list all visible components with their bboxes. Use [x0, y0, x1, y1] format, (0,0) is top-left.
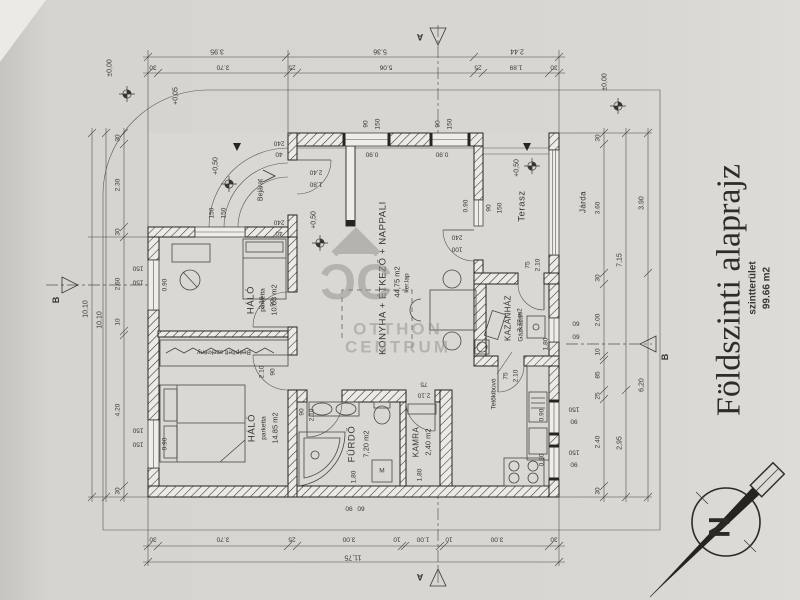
- wardrobe-name: Beépített szekrény: [196, 349, 251, 356]
- bedroom1-name: HÁLÓ: [246, 286, 257, 314]
- bedroom2-floor: parketta: [261, 416, 268, 440]
- bathroom-name: FÜRDŐ: [347, 426, 358, 463]
- dim-right-a-7: 2.40: [595, 435, 602, 448]
- dim-right-a-8: 30: [595, 487, 602, 495]
- living-floor: ker.lap: [404, 273, 411, 293]
- living-area: 44,75 m2: [393, 266, 402, 297]
- section-label-b-left: B: [51, 296, 61, 303]
- bath-door-height: 2.10: [309, 408, 316, 421]
- win-k2-width: 90: [570, 461, 578, 468]
- dim-right-a-0: 30: [595, 134, 602, 142]
- section-label-a-top: A: [416, 32, 423, 42]
- boilerN-door-height: 2.10: [535, 258, 542, 271]
- washer-label: M: [379, 468, 384, 475]
- bath-dim: 1,80: [351, 470, 358, 483]
- window-boiler-vent: [549, 318, 559, 342]
- entry-jamb-b1: 240: [273, 219, 284, 226]
- dim-bottom-3: 3.00: [342, 536, 355, 543]
- win-n1-height: 150: [375, 118, 382, 129]
- level-terrace-50: +0,50: [514, 159, 521, 177]
- section-label-a-bottom: A: [416, 572, 423, 582]
- dim-right-b-1: 2,95: [617, 436, 624, 450]
- dim-bottom-6: 10: [445, 536, 453, 543]
- boilerS-door-width: 75: [503, 372, 510, 380]
- win-e-living-sill: 0.90: [463, 199, 470, 212]
- dim-top-outer-0: 3.95: [210, 48, 224, 55]
- floorplan-canvas: A A B B: [0, 0, 800, 600]
- pantry-dim: 1,80: [417, 468, 424, 481]
- bed2-door-height: 2.10: [259, 365, 266, 378]
- boilerS-door-height: 2.10: [513, 369, 520, 382]
- compass-north-letter: N: [704, 516, 737, 538]
- dim-top-inner-0: 30: [149, 64, 157, 71]
- boiler-name: KAZÁNHÁZ: [504, 295, 513, 341]
- win-n2-height: 150: [447, 118, 454, 129]
- window-west-bedroom1: [148, 260, 159, 310]
- dim-right-c-1: 6,20: [639, 378, 646, 392]
- win-porch-height: 150: [221, 207, 228, 218]
- dim-bottom-2: 25: [288, 536, 296, 543]
- window-porch: [195, 227, 245, 237]
- dim-left-4: 10: [115, 318, 122, 326]
- watermark-line1: OTTHON: [353, 320, 443, 339]
- bedroom1-floor: parketta: [260, 288, 267, 312]
- window-east-living: [474, 200, 483, 226]
- dim-bottom-7: 3.00: [490, 536, 503, 543]
- title-area: 99.66 m2: [762, 266, 773, 309]
- win-n2-width: 90: [435, 120, 442, 128]
- hall-partition-wall: [346, 146, 355, 226]
- dim-left-1: 2.30: [115, 178, 122, 191]
- dim-left-0: 30: [115, 134, 122, 142]
- pantry-door-height: 2.10: [417, 392, 430, 399]
- dim-right-a-6: 25: [595, 392, 602, 400]
- dim-right-a-2: 30: [595, 274, 602, 282]
- dim-left-2: 30: [115, 228, 122, 236]
- level-plus5: +0,05: [173, 87, 180, 105]
- window-east-kitchen-2: [549, 445, 559, 480]
- dim-top-outer-2: 2.44: [510, 48, 524, 55]
- vent-height: 60: [572, 333, 580, 340]
- bedroom2-area: 14.85 m2: [271, 412, 280, 443]
- dim-top-inner-6: 30: [550, 64, 558, 71]
- win-w1-sill: 0.90: [162, 278, 169, 291]
- win-e-living-width: 90: [486, 204, 493, 212]
- watermark-logo: ƆC: [320, 254, 392, 310]
- dim-top-inner-4: 25: [474, 64, 482, 71]
- boilerN-door-width: 75: [525, 261, 532, 269]
- bed2-door-width: 90: [270, 368, 277, 376]
- dim-right-a-5: 85: [595, 371, 602, 379]
- entry-door-width: 1,80: [309, 181, 322, 188]
- dim-right-c-0: 3.90: [639, 196, 646, 210]
- dim-bottom-0: 30: [149, 536, 157, 543]
- win-porch-width: 150: [209, 207, 216, 218]
- win-w1-width: 150: [132, 265, 143, 272]
- bedroom1-area: 10.03 m2: [270, 284, 279, 315]
- pantry-area: 2,40 m2: [424, 428, 433, 455]
- win-w2-width: 150: [132, 427, 143, 434]
- terrace-railing: [549, 150, 559, 255]
- win-k1-sill: 0.90: [539, 408, 546, 421]
- entry-jamb-b2: 40: [275, 230, 283, 237]
- dim-left-total-a: 10,10: [83, 300, 90, 318]
- dim-top-inner-5: 1.89: [509, 64, 522, 71]
- south-opening-a: 90: [345, 505, 353, 512]
- pantry-name: KAMRA: [412, 427, 421, 458]
- level-zero-right: ±0,00: [602, 73, 609, 91]
- bathroom-area: 7,20 m2: [362, 430, 371, 457]
- win-k1-width: 90: [570, 418, 578, 425]
- window-east-kitchen-1: [549, 400, 559, 435]
- win-w1-height: 150: [132, 279, 143, 286]
- window-north-1: [343, 133, 390, 146]
- level-hall-50: +0,50: [311, 211, 318, 229]
- pantry-door-width: 75: [420, 381, 428, 388]
- win-w2-height: 150: [132, 441, 143, 448]
- dim-right-b-0: 7,15: [617, 253, 624, 267]
- dim-top-inner-3: 5.06: [379, 64, 392, 71]
- dim-top-inner-1: 3.70: [216, 64, 229, 71]
- win-k2-sill: 0.90: [539, 453, 546, 466]
- title-subtitle: szintterület: [748, 261, 759, 315]
- dim-bottom-1: 3.70: [216, 536, 229, 543]
- bedroom2-name: HÁLÓ: [247, 414, 258, 442]
- dim-right-a-1: 3.60: [595, 201, 602, 214]
- terrace-name: Terasz: [517, 190, 528, 222]
- page-title: Földszinti alaprajz: [711, 164, 748, 416]
- dim-left-6: 30: [115, 487, 122, 495]
- entry-jamb-a1: 240: [273, 140, 284, 147]
- bath-door-width: 90: [299, 408, 306, 416]
- dim-left-total-b: 10.10: [97, 311, 104, 329]
- dim-right-a-3: 2.00: [595, 313, 602, 326]
- dim-bottom-8: 30: [550, 536, 558, 543]
- entry-jamb-a2: 40: [275, 151, 283, 158]
- level-porch-50: +0,50: [213, 157, 220, 175]
- level-zero-left: ±0,00: [107, 59, 114, 77]
- dim-right-a-4: 10: [595, 348, 602, 356]
- win-n2-sill: 0.90: [435, 151, 448, 158]
- watermark-line2: CENTRUM: [345, 338, 451, 357]
- terrace-door-width: 100: [451, 246, 462, 253]
- south-opening-b: 60: [357, 505, 365, 512]
- win-w2-sill: 0.90: [162, 437, 169, 450]
- win-e-living-height: 150: [497, 202, 504, 213]
- dim-left-3: 2.60: [115, 277, 122, 290]
- window-west-bedroom2: [148, 420, 159, 468]
- dim-bottom-5: 1.00: [416, 536, 429, 543]
- win-n1-width: 90: [363, 120, 370, 128]
- boiler-dim: 1,80: [543, 337, 550, 350]
- roof-hatch-label: Tetőkibúvó: [491, 378, 498, 409]
- gas-boiler-label: Gázkazán: [518, 312, 525, 342]
- dim-left-5: 4.20: [115, 403, 122, 416]
- terrace-door-height: 240: [451, 234, 462, 241]
- entry-door-height: 2,40: [309, 169, 322, 176]
- dim-bottom-4: 10: [393, 536, 401, 543]
- dim-top-outer-1: 5.36: [373, 48, 387, 55]
- scanned-floorplan-page: A A B B: [0, 0, 800, 600]
- dim-top-inner-2: 25: [288, 64, 296, 71]
- win-k2-height: 150: [568, 449, 579, 456]
- window-north-2: [430, 133, 470, 146]
- win-n1-sill: 0.90: [365, 151, 378, 158]
- sidewalk-name: Járda: [579, 191, 588, 213]
- dim-bottom-total: 11,75: [344, 554, 361, 561]
- section-label-b-right: B: [660, 353, 670, 360]
- vent-width: 60: [572, 320, 580, 327]
- win-k1-height: 150: [568, 406, 579, 413]
